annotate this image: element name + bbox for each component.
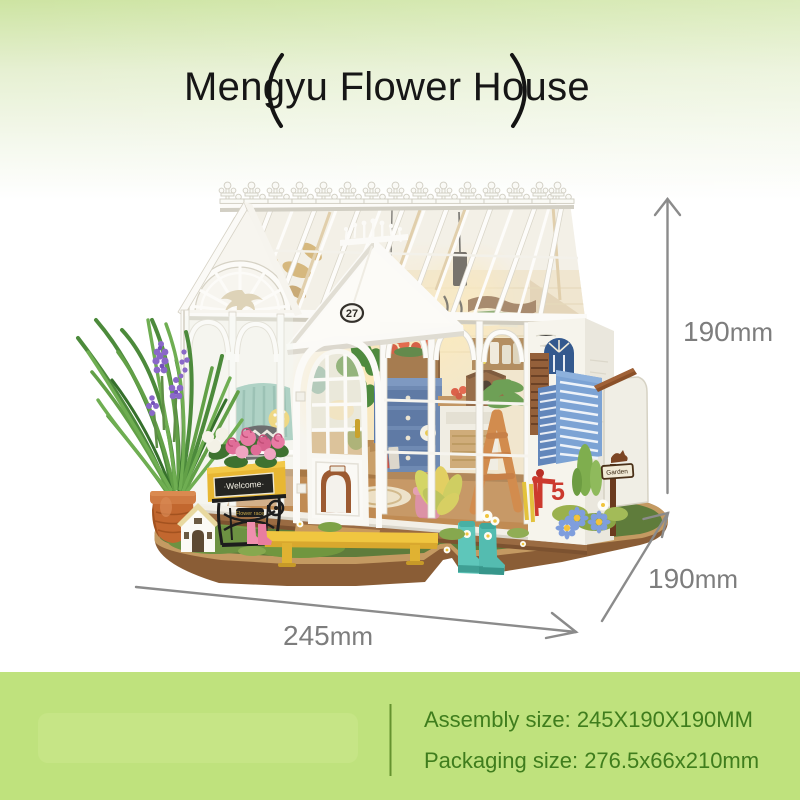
svg-text:Packaging size: 276.5x66x210mm: Packaging size: 276.5x66x210mm — [424, 748, 759, 773]
svg-text:Mengyu Flower House: Mengyu Flower House — [184, 65, 590, 109]
svg-text:245mm: 245mm — [283, 620, 373, 651]
svg-text:190mm: 190mm — [648, 563, 738, 594]
svg-text:Assembly size: 245X190X190MM: Assembly size: 245X190X190MM — [424, 707, 753, 732]
svg-text:190mm: 190mm — [683, 316, 773, 347]
svg-text:5: 5 — [551, 478, 565, 506]
svg-text:Flower race: Flower race — [236, 511, 265, 517]
svg-text:27: 27 — [346, 308, 358, 320]
